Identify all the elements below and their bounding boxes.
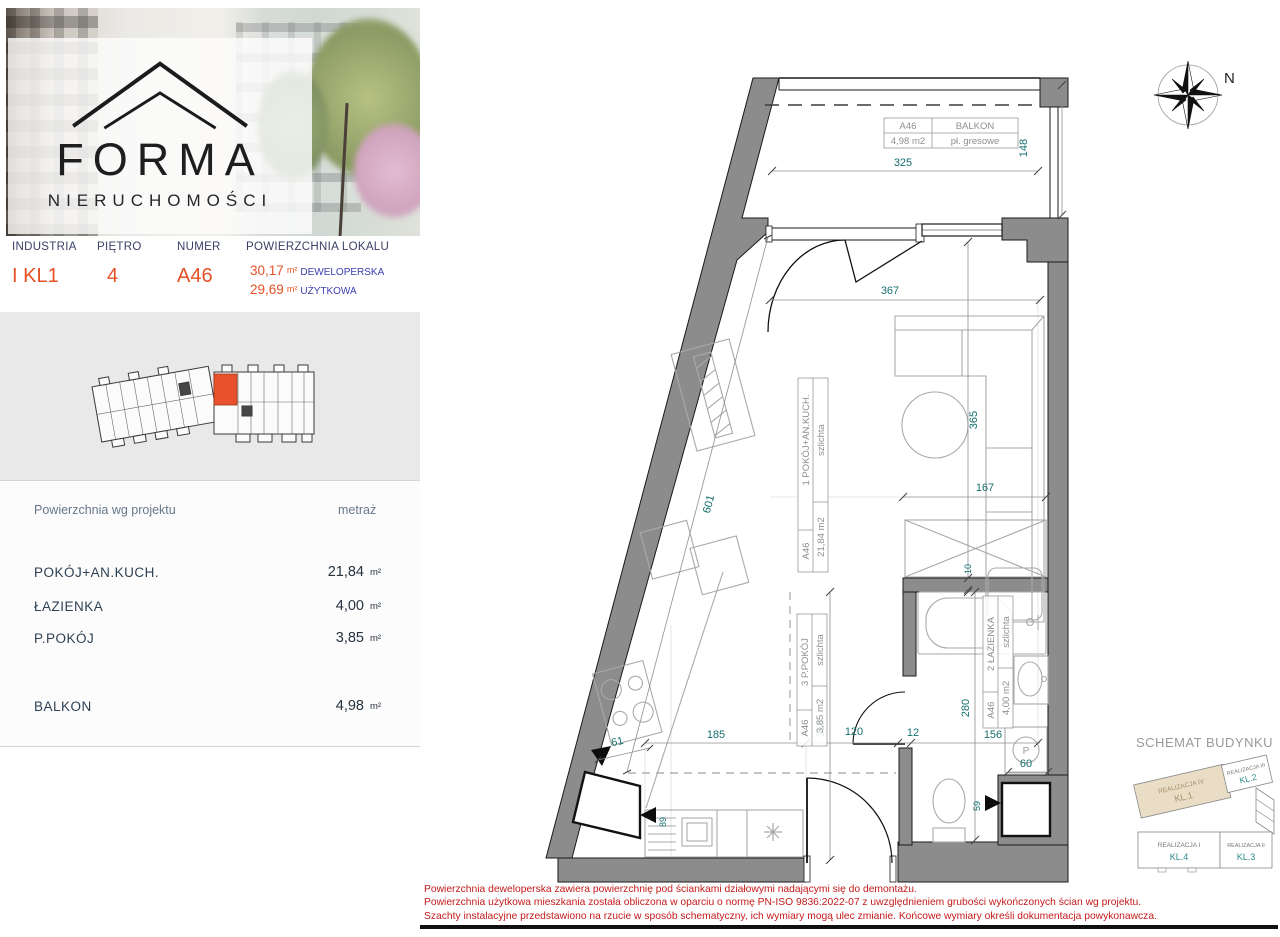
svg-text:szlichta: szlichta	[816, 423, 827, 455]
row-value: 4,98	[284, 698, 364, 714]
disclaimer-line: Szachty instalacyjne przedstawiono na rz…	[424, 910, 1280, 923]
shaft-left	[573, 772, 640, 838]
row-unit: m²	[370, 601, 381, 612]
svg-text:2 ŁAZIENKA: 2 ŁAZIENKA	[986, 616, 997, 671]
building-schematic: REALIZACJA IV KL.1 REALIZACJA III KL.2 R…	[1128, 752, 1278, 882]
balcony-door-swing	[768, 240, 845, 332]
entry-door	[804, 778, 896, 882]
header-numer: NUMER	[177, 241, 221, 253]
dim-washer: 60	[1020, 758, 1032, 770]
washbasin	[1014, 656, 1048, 704]
row-value: 21,84	[284, 564, 364, 580]
wall-corner-right	[1002, 218, 1068, 262]
svg-text:REALIZACJA II: REALIZACJA II	[1227, 843, 1265, 849]
bottom-rule	[420, 925, 1278, 929]
washing-machine-symbol: P	[1023, 746, 1030, 757]
wall-bottom-right	[898, 842, 1068, 882]
label-hall: A46 3 P.POKÓJ 3,85 m2 szlichta	[797, 614, 827, 746]
dim-room-depth: 365	[968, 411, 980, 429]
value-floor: 4	[107, 265, 118, 288]
disclaimer-line: Powierzchnia użytkowa mieszkania została…	[424, 896, 1280, 909]
dim-room-width: 367	[881, 285, 899, 297]
areas-header-right: metraż	[338, 503, 376, 517]
mini-floorplan	[86, 344, 326, 476]
brand-logo: FORMA NIERUCHOMOŚCI	[8, 38, 312, 234]
svg-text:A46: A46	[800, 720, 811, 737]
dim-61: 61	[610, 735, 624, 749]
header-pietro: PIĘTRO	[97, 241, 142, 253]
dim-balcony-width: 325	[894, 157, 912, 169]
header-powierzchnia: POWIERZCHNIA LOKALU	[246, 241, 389, 253]
disclaimer: Powierzchnia deweloperska zawiera powier…	[424, 883, 1280, 923]
areas-table: Powierzchnia wg projektu metraż POKÓJ+AN…	[0, 480, 420, 747]
wall-bath-left-upper	[903, 592, 916, 676]
apartment-card-page: FORMA NIERUCHOMOŚCI INDUSTRIA PIĘTRO NUM…	[0, 0, 1280, 937]
schematic-block-kl1: REALIZACJA IV KL.1	[1134, 764, 1231, 818]
dim-sofa-wall: 167	[976, 482, 994, 494]
svg-text:KL.4: KL.4	[1170, 852, 1189, 862]
row-unit: m²	[370, 633, 381, 644]
svg-text:szlichta: szlichta	[1001, 615, 1012, 647]
area-developer: 30,17 m²DEWELOPERSKA	[250, 262, 384, 281]
hero-photo: FORMA NIERUCHOMOŚCI	[6, 8, 420, 236]
mini-floorplan-panel	[0, 312, 420, 480]
schematic-block-kl3: REALIZACJA II KL.3	[1220, 832, 1272, 868]
kitchen-counter	[645, 810, 803, 857]
schematic-title: SCHEMAT BUDYNKU	[1136, 735, 1273, 750]
row-label: P.POKÓJ	[34, 631, 94, 646]
photo-tree-pink	[354, 123, 420, 218]
dim-gap10: 10	[963, 564, 973, 574]
svg-text:3,85 m2: 3,85 m2	[815, 699, 826, 733]
dishwasher-icon	[764, 823, 782, 841]
schematic-block-kl2: REALIZACJA III KL.2	[1221, 755, 1272, 793]
toilet	[933, 779, 965, 842]
area-summary: 30,17 m²DEWELOPERSKA 29,69 m²UŻYTKOWA	[250, 262, 384, 300]
area-usable: 29,69 m²UŻYTKOWA	[250, 281, 384, 300]
dim-kitchen: 185	[707, 729, 725, 741]
floor-plan: P 325 148 367	[538, 53, 1086, 887]
svg-text:KL.3: KL.3	[1237, 852, 1256, 862]
svg-text:4,00 m2: 4,00 m2	[1001, 681, 1012, 715]
wall-diagonal-left	[546, 78, 779, 858]
svg-text:4,98 m2: 4,98 m2	[891, 136, 925, 147]
bathtub	[918, 592, 1046, 654]
svg-text:3 P.POKÓJ: 3 P.POKÓJ	[800, 638, 811, 686]
svg-text:pł. gresowe: pł. gresowe	[951, 136, 1000, 147]
schematic-block-kl4: REALIZACJA I KL.4	[1138, 832, 1220, 868]
svg-text:BALKON: BALKON	[956, 121, 995, 132]
dim-balcony-depth: 148	[1018, 139, 1030, 157]
balcony-door-leaf	[845, 240, 922, 282]
areas-header-left: Powierzchnia wg projektu	[34, 503, 176, 517]
round-table	[902, 392, 968, 458]
label-balcony: A46 BALKON 4,98 m2 pł. gresowe	[884, 118, 1018, 148]
dim-89: 89	[658, 817, 668, 827]
brand-subtitle: NIERUCHOMOŚCI	[8, 191, 312, 211]
mini-floorplan-highlighted-unit	[214, 374, 237, 405]
row-label: POKÓJ+AN.KUCH.	[34, 565, 159, 580]
dim-bath-length: 280	[960, 699, 972, 717]
svg-text:21,84 m2: 21,84 m2	[816, 517, 827, 557]
shaft-right	[1002, 783, 1050, 836]
wall-bath-left-lower	[899, 748, 912, 845]
row-value: 3,85	[284, 630, 364, 646]
wall-bath-top	[903, 578, 1048, 592]
row-label: BALKON	[34, 699, 92, 714]
row-label: ŁAZIENKA	[34, 599, 103, 614]
svg-text:REALIZACJA I: REALIZACJA I	[1158, 842, 1201, 849]
row-unit: m²	[370, 701, 381, 712]
roof-icon	[65, 52, 255, 132]
svg-text:A46: A46	[986, 702, 997, 719]
dim-59: 59	[972, 801, 982, 811]
row-unit: m²	[370, 567, 381, 578]
dim-wall-diagonal: 601	[701, 494, 717, 515]
compass-north-label: N	[1224, 70, 1235, 87]
compass-rose-icon: N	[1148, 50, 1240, 142]
brand-name: FORMA	[8, 134, 312, 186]
svg-text:szlichta: szlichta	[815, 633, 826, 665]
row-value: 4,00	[284, 598, 364, 614]
disclaimer-line: Powierzchnia deweloperska zawiera powier…	[424, 883, 1280, 896]
value-unit: A46	[177, 265, 213, 288]
dim-bath-width: 156	[984, 729, 1002, 741]
label-room: A46 1 POKÓJ+AN.KUCH. 21,84 m2 szlichta	[798, 378, 828, 572]
svg-text:A46: A46	[900, 121, 917, 132]
vent-arrow-left	[640, 807, 656, 823]
wardrobe	[905, 520, 1046, 577]
label-bath: A46 2 ŁAZIENKA 4,00 m2 szlichta	[983, 596, 1013, 728]
dim-wall12: 12	[907, 727, 919, 739]
schematic-connector	[1256, 788, 1274, 834]
svg-text:A46: A46	[801, 543, 812, 560]
svg-text:1 POKÓJ+AN.KUCH.: 1 POKÓJ+AN.KUCH.	[801, 394, 812, 485]
dim-hall-width: 120	[845, 726, 863, 738]
pillar-balcony	[1040, 78, 1068, 107]
wall-bottom-left	[558, 858, 806, 882]
header-industria: INDUSTRIA	[12, 241, 77, 253]
value-building: I KL1	[12, 265, 59, 288]
